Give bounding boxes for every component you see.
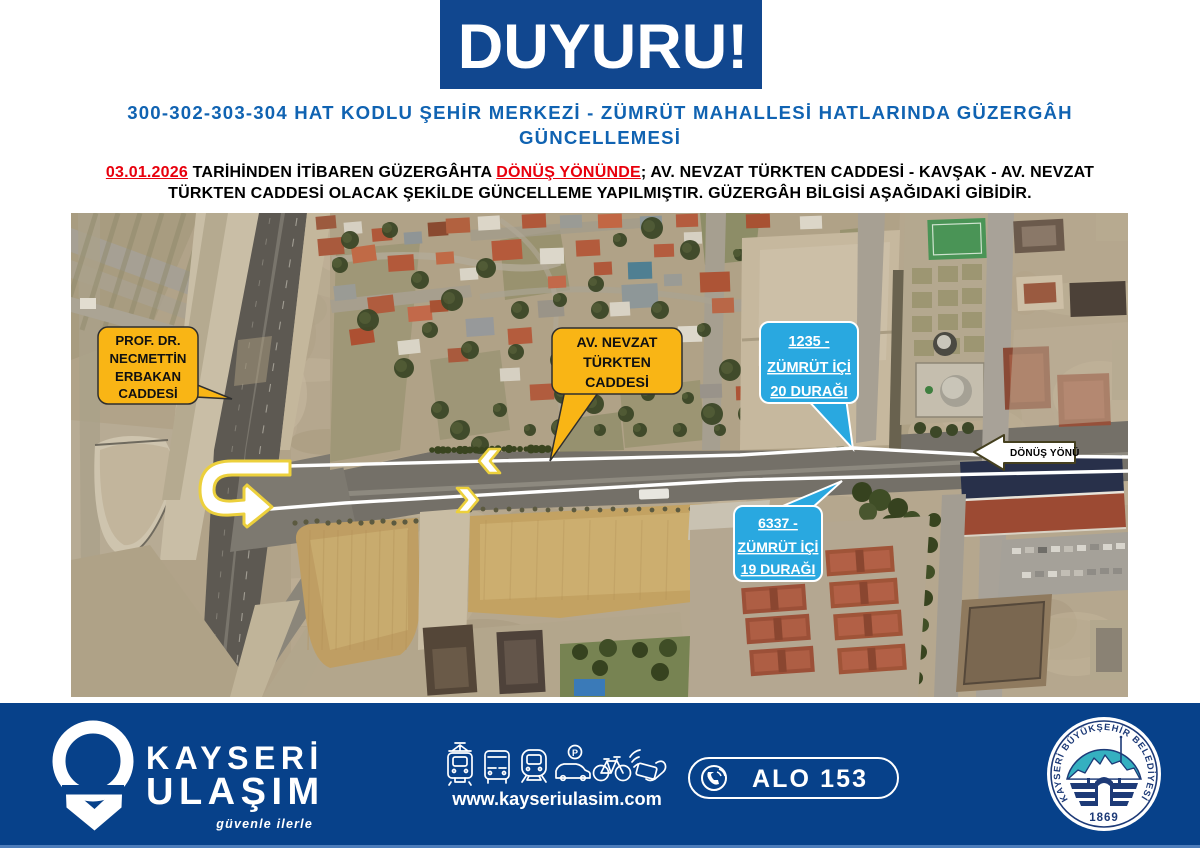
svg-text:ULAŞIM: ULAŞIM bbox=[146, 771, 325, 813]
svg-text:güvenle ilerle: güvenle ilerle bbox=[215, 817, 313, 831]
svg-text:NECMETTİN: NECMETTİN bbox=[110, 351, 187, 366]
svg-text:CADDESİ: CADDESİ bbox=[585, 374, 649, 391]
svg-text:ZÜMRÜT İÇİ: ZÜMRÜT İÇİ bbox=[738, 539, 819, 555]
svg-text:ALO 153: ALO 153 bbox=[752, 765, 868, 793]
svg-text:6337 -: 6337 - bbox=[758, 515, 798, 531]
svg-text:ERBAKAN: ERBAKAN bbox=[115, 369, 181, 384]
svg-text:P: P bbox=[572, 748, 578, 758]
svg-text:TÜRKTEN: TÜRKTEN bbox=[583, 354, 651, 371]
svg-text:PROF. DR.: PROF. DR. bbox=[115, 333, 180, 348]
svg-text:www.kayseriulasim.com: www.kayseriulasim.com bbox=[451, 789, 662, 809]
svg-text:1235 -: 1235 - bbox=[788, 334, 829, 350]
svg-text:AV. NEVZAT: AV. NEVZAT bbox=[577, 335, 658, 351]
svg-text:19 DURAĞI: 19 DURAĞI bbox=[741, 560, 816, 577]
svg-text:CADDESİ: CADDESİ bbox=[118, 386, 177, 401]
svg-text:20 DURAĞI: 20 DURAĞI bbox=[770, 382, 847, 400]
svg-text:1869: 1869 bbox=[1089, 812, 1119, 824]
svg-text:DÖNÜŞ YÖNÜ: DÖNÜŞ YÖNÜ bbox=[1010, 446, 1080, 459]
svg-text:ZÜMRÜT İÇİ: ZÜMRÜT İÇİ bbox=[767, 359, 851, 376]
